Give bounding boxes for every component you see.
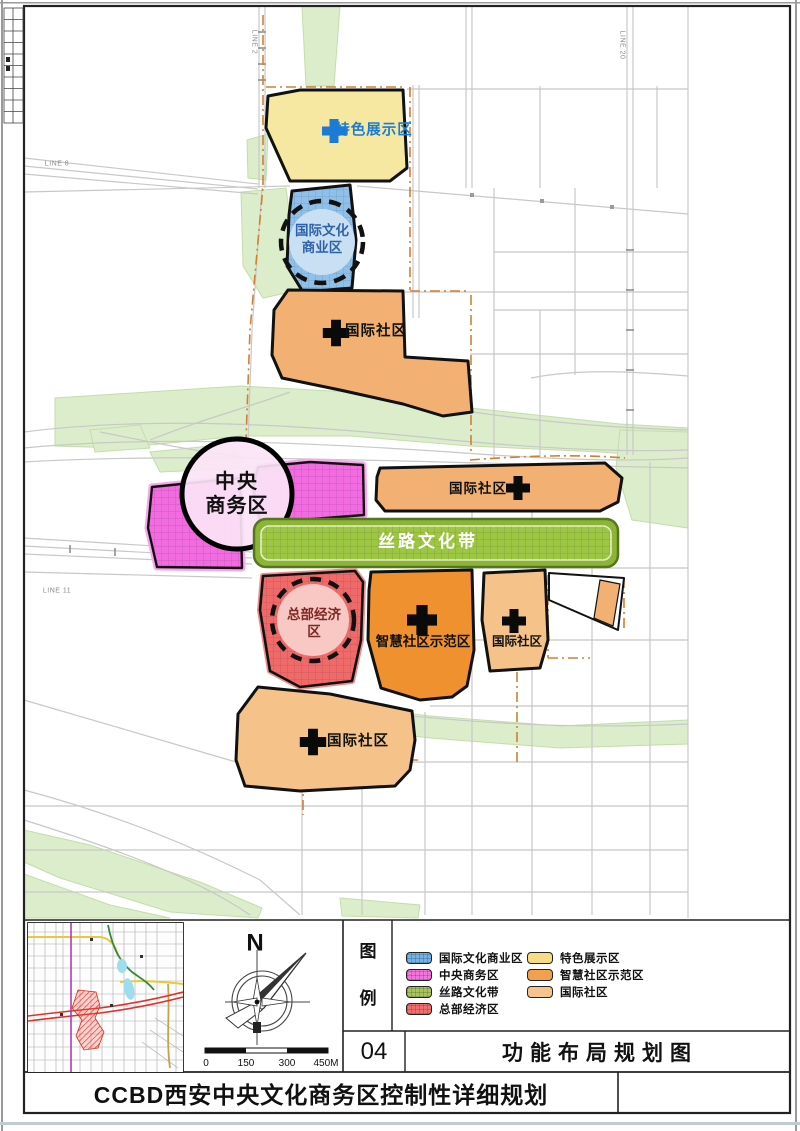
legend-item: 总部经济区 — [406, 1001, 499, 1017]
zone-label-silk-road-belt: 丝路文化带 — [378, 532, 478, 552]
legend-label: 特色展示区 — [560, 950, 620, 966]
map-canvas — [0, 0, 800, 1131]
rail-label-line20: LINE 20 — [619, 31, 626, 60]
legend-label: 国际社区 — [560, 984, 608, 1000]
rail-label-line11: LINE 11 — [43, 588, 71, 595]
zone-label-intl-community-small: 国际社区 — [492, 635, 542, 650]
legend-item: 中央商务区 — [406, 967, 499, 983]
zone-label-intl-community-mid: 国际社区 — [449, 481, 507, 497]
zone-label-cbd-line2: 商务区 — [206, 494, 269, 518]
inset-location-map — [28, 923, 183, 1072]
legend-item: 智慧社区示范区 — [527, 967, 644, 983]
drawing-number: 04 — [361, 1038, 388, 1066]
legend-label: 国际文化商业区 — [439, 950, 523, 966]
zone-label-hq-economy-line1: 总部经济 — [287, 607, 341, 623]
zone-label-intl-culture-line2: 商业区 — [302, 240, 343, 256]
scale-tick-450: 450M — [313, 1058, 338, 1069]
scale-tick-300: 300 — [279, 1058, 296, 1069]
legend-swatch-special-exhibition — [527, 952, 553, 964]
scale-tick-0: 0 — [203, 1058, 209, 1069]
legend-swatch-smart-community — [527, 969, 553, 981]
zone-label-intl-community-top: 国际社区 — [345, 323, 407, 340]
legend-item: 国际文化商业区 — [406, 950, 523, 966]
sheet-index-strip — [4, 8, 23, 123]
legend-item: 特色展示区 — [527, 950, 620, 966]
project-title: CCBD西安中央文化商务区控制性详细规划 — [94, 1076, 548, 1110]
legend-swatch-cbd — [406, 969, 432, 981]
rail-label-line8: LINE 8 — [45, 161, 69, 168]
legend-label: 丝路文化带 — [439, 984, 499, 1000]
zone-label-special-exhibition: 特色展示区 — [335, 122, 413, 139]
drawing-title: 功能布局规划图 — [502, 1037, 698, 1067]
zone-label-smart-community: 智慧社区示范区 — [376, 634, 471, 650]
legend-header-bottom: 例 — [360, 989, 377, 1009]
legend-swatch-silk-road — [406, 986, 432, 998]
legend-item: 丝路文化带 — [406, 984, 499, 1000]
legend-swatch-hq-economy — [406, 1003, 432, 1015]
zone-label-intl-community-bottom: 国际社区 — [327, 733, 389, 750]
rail-label-line2: LINE 2 — [251, 30, 258, 54]
scale-tick-150: 150 — [238, 1058, 255, 1069]
plan-sheet: 特色展示区 国际文化 商业区 国际社区 国际社区 中央 商务区 丝路文化带 总部… — [0, 0, 800, 1131]
compass-north-label: N — [246, 930, 263, 959]
legend-swatch-intl-community — [527, 986, 553, 998]
zone-orange-quad — [549, 573, 624, 630]
zone-label-cbd-line1: 中央 — [215, 470, 259, 494]
compass-rose — [225, 950, 310, 1045]
legend-item: 国际社区 — [527, 984, 608, 1000]
rail-station-dots — [470, 193, 614, 209]
zone-label-hq-economy-line2: 区 — [307, 624, 321, 640]
legend-label: 中央商务区 — [439, 967, 499, 983]
legend-label: 智慧社区示范区 — [560, 967, 644, 983]
zone-label-intl-culture-line1: 国际文化 — [295, 223, 349, 239]
legend-header-top: 图 — [360, 942, 377, 962]
legend-label: 总部经济区 — [439, 1001, 499, 1017]
scale-bar — [205, 1048, 328, 1053]
legend-swatch-intl-culture — [406, 952, 432, 964]
